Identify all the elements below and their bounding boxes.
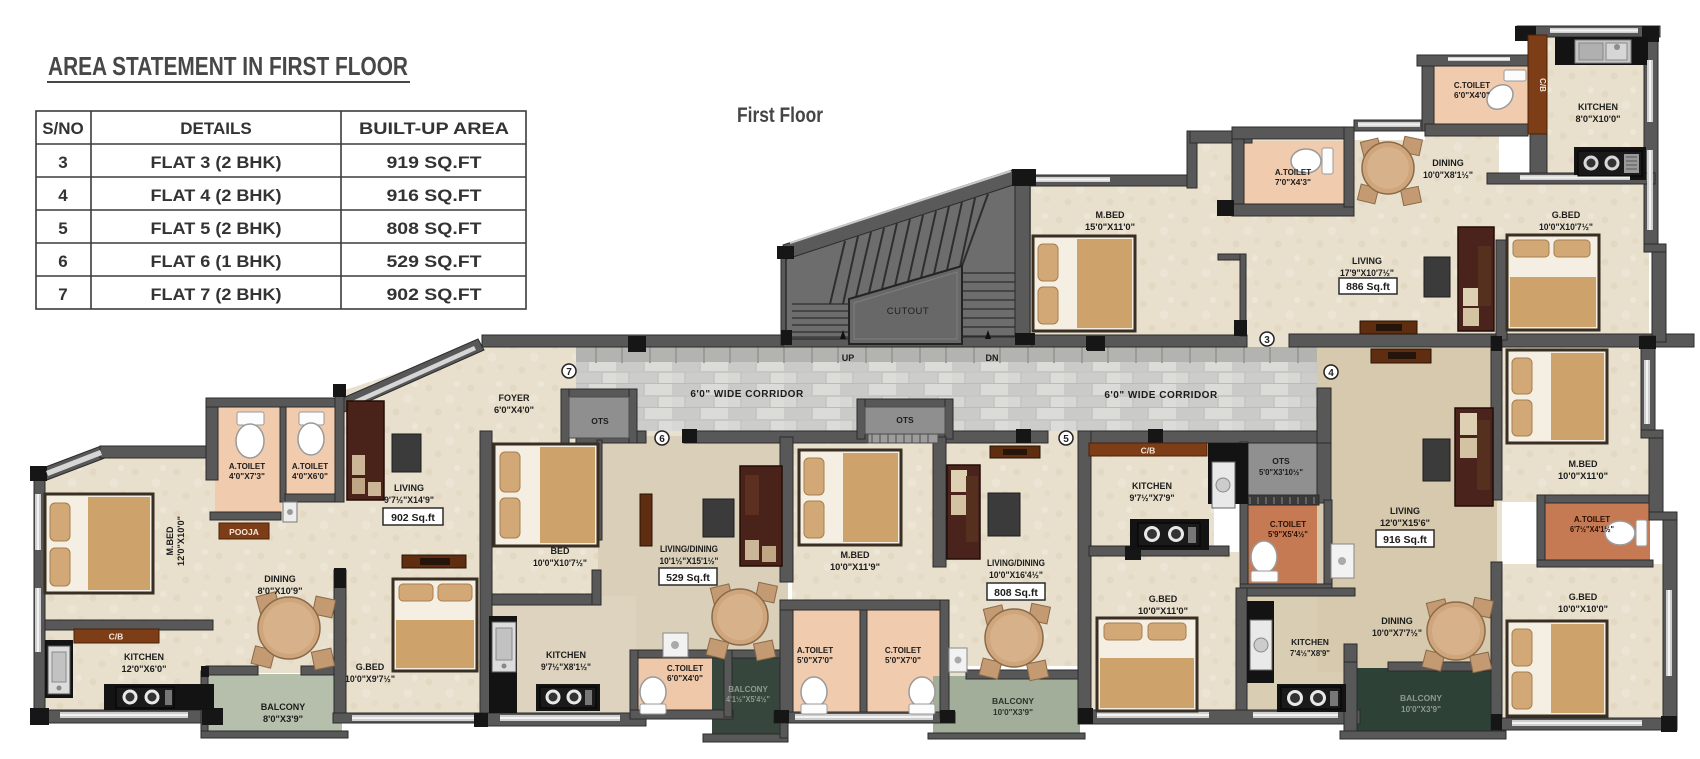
svg-text:S/NO: S/NO [42, 119, 84, 138]
svg-text:BALCONY: BALCONY [992, 696, 1034, 706]
svg-text:M.BED: M.BED [841, 550, 871, 560]
svg-text:A.TOILET: A.TOILET [229, 462, 265, 471]
svg-text:First Floor: First Floor [737, 104, 823, 127]
svg-text:12'0"X6'0": 12'0"X6'0" [122, 664, 167, 674]
svg-text:OTS: OTS [591, 416, 609, 426]
svg-text:KITCHEN: KITCHEN [1578, 102, 1618, 112]
svg-text:808 Sq.ft: 808 Sq.ft [994, 587, 1038, 599]
svg-text:10'0"X11'0": 10'0"X11'0" [1138, 606, 1188, 616]
svg-text:KITCHEN: KITCHEN [124, 652, 164, 662]
svg-text:916 Sq.ft: 916 Sq.ft [1383, 534, 1427, 546]
svg-text:12'0"X15'6": 12'0"X15'6" [1380, 518, 1430, 528]
svg-text:BALCONY: BALCONY [728, 685, 768, 694]
svg-text:10'0"X3'9": 10'0"X3'9" [1401, 704, 1441, 714]
svg-text:C/B: C/B [109, 632, 124, 642]
svg-text:3: 3 [1264, 335, 1270, 346]
svg-text:10'0"X16'4½": 10'0"X16'4½" [989, 570, 1043, 580]
svg-text:C.TOILET: C.TOILET [885, 646, 921, 655]
svg-text:4: 4 [1328, 368, 1334, 379]
svg-text:10'1½"X15'1½": 10'1½"X15'1½" [660, 556, 719, 566]
svg-text:902 SQ.FT: 902 SQ.FT [387, 285, 483, 304]
svg-text:BUILT-UP AREA: BUILT-UP AREA [359, 119, 509, 138]
svg-text:UP: UP [842, 353, 855, 363]
svg-text:9'7½"X8'1½": 9'7½"X8'1½" [541, 662, 591, 672]
svg-text:9'7½"X14'9": 9'7½"X14'9" [384, 495, 434, 505]
svg-text:7'0"X4'3": 7'0"X4'3" [1275, 178, 1311, 187]
svg-text:8'0"X3'9": 8'0"X3'9" [263, 714, 303, 724]
svg-text:FOYER: FOYER [498, 393, 530, 403]
svg-text:5'0"X7'0": 5'0"X7'0" [797, 656, 833, 665]
svg-text:C.TOILET: C.TOILET [1270, 520, 1306, 529]
svg-text:M.BED: M.BED [1569, 459, 1599, 469]
svg-text:808 SQ.FT: 808 SQ.FT [387, 219, 483, 238]
svg-text:7'4½"X8'9": 7'4½"X8'9" [1290, 648, 1330, 658]
svg-text:4'0"X6'0": 4'0"X6'0" [292, 472, 328, 481]
svg-text:6'0"X4'0": 6'0"X4'0" [1454, 91, 1490, 100]
svg-text:3: 3 [58, 153, 67, 172]
svg-text:10'0"X8'1½": 10'0"X8'1½" [1423, 170, 1473, 180]
svg-text:15'0"X11'0": 15'0"X11'0" [1085, 222, 1135, 232]
svg-text:BED: BED [550, 546, 570, 556]
svg-text:G.BED: G.BED [1569, 592, 1598, 602]
svg-text:FLAT 4 (2 BHK): FLAT 4 (2 BHK) [151, 186, 282, 205]
svg-text:6'0"X4'0": 6'0"X4'0" [667, 674, 703, 683]
svg-text:C.TOILET: C.TOILET [1454, 81, 1490, 90]
svg-text:5'9"X5'4½": 5'9"X5'4½" [1268, 530, 1308, 539]
svg-text:10'0"X10'7½": 10'0"X10'7½" [1539, 222, 1593, 232]
svg-text:KITCHEN: KITCHEN [546, 650, 586, 660]
svg-text:KITCHEN: KITCHEN [1132, 481, 1172, 491]
svg-text:DETAILS: DETAILS [180, 119, 251, 138]
svg-text:FLAT 5 (2 BHK): FLAT 5 (2 BHK) [151, 219, 282, 238]
svg-text:FLAT 7 (2 BHK): FLAT 7 (2 BHK) [151, 285, 282, 304]
svg-text:6'0" WIDE CORRIDOR: 6'0" WIDE CORRIDOR [690, 389, 804, 400]
svg-text:LIVING/DINING: LIVING/DINING [987, 558, 1045, 568]
svg-text:4'0"X7'3": 4'0"X7'3" [229, 472, 265, 481]
svg-text:OTS: OTS [1272, 456, 1290, 466]
svg-text:OTS: OTS [896, 415, 914, 425]
svg-text:C/B: C/B [1538, 78, 1547, 92]
svg-text:886 Sq.ft: 886 Sq.ft [1346, 281, 1390, 293]
svg-text:KITCHEN: KITCHEN [1291, 637, 1329, 647]
svg-text:DINING: DINING [1381, 616, 1413, 626]
svg-text:M.BED: M.BED [165, 526, 175, 556]
svg-text:6'7½"X4'1½": 6'7½"X4'1½" [1570, 525, 1614, 534]
svg-text:M.BED: M.BED [1096, 210, 1126, 220]
svg-text:A.TOILET: A.TOILET [292, 462, 328, 471]
svg-text:A.TOILET: A.TOILET [797, 646, 833, 655]
svg-text:C.TOILET: C.TOILET [667, 664, 703, 673]
svg-text:10'0"X11'9": 10'0"X11'9" [830, 562, 880, 572]
svg-text:5'0"X7'0": 5'0"X7'0" [885, 656, 921, 665]
svg-text:12'0"X10'0": 12'0"X10'0" [176, 516, 186, 566]
svg-text:10'0"X3'9": 10'0"X3'9" [993, 707, 1033, 717]
svg-text:LIVING: LIVING [394, 483, 424, 493]
svg-text:10'0"X10'0": 10'0"X10'0" [1558, 604, 1608, 614]
svg-text:G.BED: G.BED [1149, 594, 1178, 604]
svg-text:529 SQ.FT: 529 SQ.FT [387, 252, 483, 271]
svg-text:CUTOUT: CUTOUT [887, 306, 929, 317]
svg-text:916 SQ.FT: 916 SQ.FT [387, 186, 483, 205]
svg-text:10'0"X7'7½": 10'0"X7'7½" [1372, 628, 1422, 638]
svg-text:DINING: DINING [264, 574, 296, 584]
svg-text:10'0"X9'7½": 10'0"X9'7½" [345, 674, 395, 684]
svg-text:5: 5 [58, 219, 67, 238]
svg-text:BALCONY: BALCONY [261, 702, 306, 712]
svg-text:LIVING: LIVING [1352, 256, 1382, 266]
svg-text:902 Sq.ft: 902 Sq.ft [391, 512, 435, 524]
svg-text:G.BED: G.BED [356, 662, 385, 672]
svg-text:G.BED: G.BED [1552, 210, 1581, 220]
svg-text:17'9"X10'7½": 17'9"X10'7½" [1340, 268, 1394, 278]
svg-text:5: 5 [1063, 434, 1069, 445]
svg-text:4: 4 [58, 186, 68, 205]
svg-text:LIVING: LIVING [1390, 506, 1420, 516]
svg-text:C/B: C/B [1141, 446, 1156, 456]
svg-text:6'0"X4'0": 6'0"X4'0" [494, 405, 534, 415]
svg-text:8'0"X10'9": 8'0"X10'9" [258, 586, 303, 596]
svg-text:10'0"X10'7½": 10'0"X10'7½" [533, 558, 587, 568]
svg-text:A.TOILET: A.TOILET [1574, 515, 1610, 524]
svg-text:FLAT 6 (1 BHK): FLAT 6 (1 BHK) [151, 252, 282, 271]
svg-text:10'0"X11'0": 10'0"X11'0" [1558, 471, 1608, 481]
svg-text:POOJA: POOJA [229, 527, 259, 537]
svg-text:6'0" WIDE CORRIDOR: 6'0" WIDE CORRIDOR [1104, 390, 1218, 401]
svg-text:6: 6 [659, 434, 665, 445]
svg-text:529 Sq.ft: 529 Sq.ft [666, 572, 710, 584]
svg-text:7: 7 [566, 367, 572, 378]
svg-text:DINING: DINING [1432, 158, 1464, 168]
svg-text:8'0"X10'0": 8'0"X10'0" [1576, 114, 1621, 124]
svg-text:5'0"X3'10½": 5'0"X3'10½" [1259, 467, 1303, 477]
svg-text:6: 6 [58, 252, 67, 271]
svg-text:BALCONY: BALCONY [1400, 693, 1442, 703]
svg-text:919 SQ.FT: 919 SQ.FT [387, 153, 483, 172]
svg-text:FLAT 3 (2 BHK): FLAT 3 (2 BHK) [151, 153, 282, 172]
svg-text:AREA STATEMENT IN FIRST FLOOR: AREA STATEMENT IN FIRST FLOOR [48, 51, 408, 81]
svg-text:9'7½"X7'9": 9'7½"X7'9" [1130, 493, 1175, 503]
svg-text:LIVING/DINING: LIVING/DINING [660, 544, 718, 554]
svg-text:7: 7 [58, 285, 67, 304]
svg-text:4'1½"X5'4½": 4'1½"X5'4½" [726, 695, 770, 704]
svg-text:DN: DN [986, 353, 999, 363]
svg-text:A.TOILET: A.TOILET [1275, 168, 1311, 177]
